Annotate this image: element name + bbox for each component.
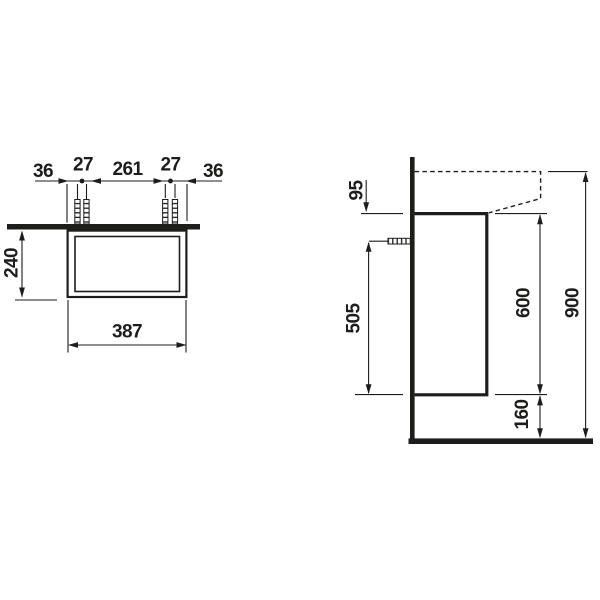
side-view: 95 505 600 160 xyxy=(343,157,593,444)
arrowhead-left xyxy=(91,178,101,184)
dim-label-900: 900 xyxy=(562,288,583,318)
dim-label-261: 261 xyxy=(113,159,144,180)
mounting-screw-1 xyxy=(75,200,80,225)
dim-label-387: 387 xyxy=(112,321,142,342)
dimension-240: 240 xyxy=(1,231,57,301)
arrowhead-down xyxy=(583,428,589,438)
dim-label-36-right: 36 xyxy=(203,161,223,182)
cabinet-inner-front xyxy=(75,237,180,292)
arrowhead-down xyxy=(366,384,372,394)
wall xyxy=(410,157,415,444)
dim-dot xyxy=(168,179,173,184)
arrowhead-right xyxy=(59,178,69,184)
dim-label-600: 600 xyxy=(513,288,534,318)
mounting-screw-4 xyxy=(172,200,177,225)
arrowhead-down xyxy=(19,288,25,298)
dim-label-160: 160 xyxy=(512,400,533,430)
dimension-900: 900 xyxy=(548,172,589,439)
wall-fixing-screw xyxy=(388,238,411,244)
washbasin-dashed-outline xyxy=(415,172,541,213)
arrowhead-up xyxy=(19,231,25,241)
floor xyxy=(409,438,594,444)
cabinet-side-profile xyxy=(415,214,487,395)
dim-label-27-right: 27 xyxy=(161,154,181,175)
dim-label-505: 505 xyxy=(343,303,364,334)
arrowhead-down xyxy=(537,384,543,394)
arrowhead-up xyxy=(366,242,372,252)
dimension-95: 95 xyxy=(346,180,403,214)
dimension-505: 505 xyxy=(343,242,403,395)
dimension-600: 600 xyxy=(495,214,547,395)
dim-label-240: 240 xyxy=(1,248,22,278)
arrowhead-down xyxy=(537,428,543,438)
arrowhead-up xyxy=(583,172,589,182)
arrowhead-right xyxy=(154,178,164,184)
countertop-slab xyxy=(7,224,200,230)
arrowhead-up xyxy=(537,214,543,224)
arrowhead-right xyxy=(177,342,187,348)
dimension-top-chain: 36 27 261 27 36 xyxy=(33,154,223,222)
arrowhead-up xyxy=(537,395,543,405)
cabinet-outer-front xyxy=(68,231,187,297)
dim-label-27-left: 27 xyxy=(73,154,93,175)
drawing-svg: 36 27 261 27 36 240 387 xyxy=(0,0,600,600)
arrowhead-left xyxy=(68,342,78,348)
dimension-160: 160 xyxy=(512,395,543,438)
dim-label-36-left: 36 xyxy=(33,161,53,182)
arrowhead-left xyxy=(186,178,196,184)
arrowhead-down xyxy=(363,202,369,212)
dim-label-95: 95 xyxy=(346,180,367,201)
dimension-387: 387 xyxy=(68,300,187,353)
technical-drawing-page: 36 27 261 27 36 240 387 xyxy=(0,0,600,600)
dim-dot xyxy=(80,179,85,184)
front-view: 36 27 261 27 36 240 387 xyxy=(1,154,223,352)
mounting-screw-2 xyxy=(84,200,89,225)
mounting-screw-3 xyxy=(163,200,168,225)
